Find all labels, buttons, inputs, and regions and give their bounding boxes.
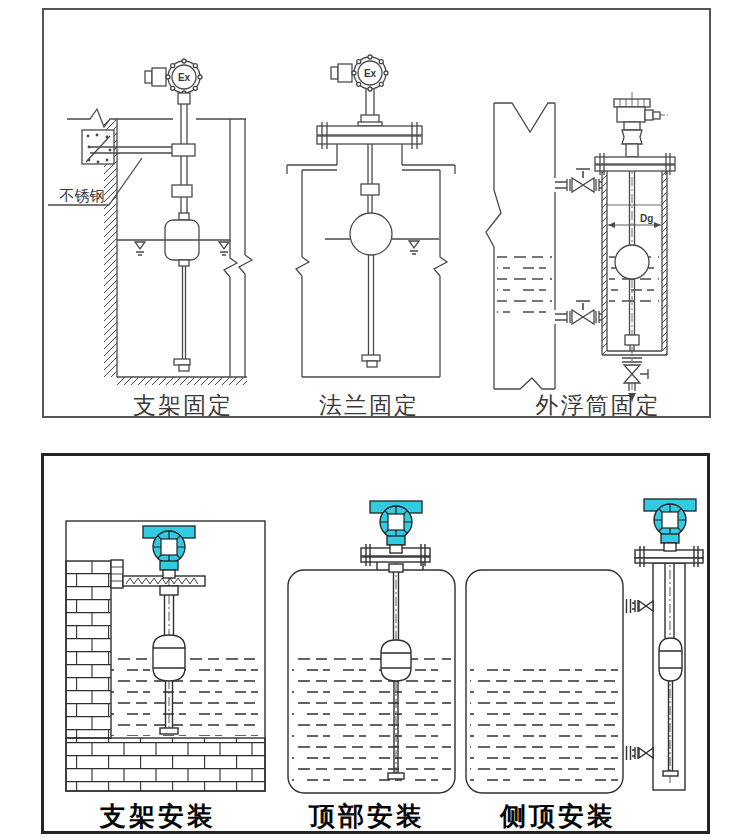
tank-wall-left bbox=[486, 103, 501, 389]
rod-coupling bbox=[361, 184, 379, 195]
flange-lower-plate bbox=[317, 136, 422, 144]
tank-wall-outer bbox=[239, 119, 252, 377]
bottom-panel-installation-methods: 支架安装 顶部安装 bbox=[41, 453, 710, 834]
tank-wall-inner bbox=[224, 119, 237, 377]
cable-gland-body bbox=[152, 68, 166, 86]
head-neck bbox=[178, 93, 190, 104]
rod-lower bbox=[369, 255, 374, 355]
sphere-float bbox=[350, 213, 392, 255]
stem bbox=[626, 144, 638, 157]
rod-mid bbox=[181, 197, 187, 213]
bottom-panel-drawing: 支架安装 顶部安装 bbox=[44, 456, 707, 831]
diagram-side-top-installation bbox=[466, 546, 703, 793]
tank-water bbox=[470, 663, 619, 789]
ex-label-2: Ex bbox=[364, 68, 377, 79]
caption-flange-fixing: 法兰固定 bbox=[319, 392, 419, 416]
pool-water bbox=[111, 652, 262, 736]
tank-top-break bbox=[494, 103, 555, 132]
upper-pipe-connection bbox=[627, 599, 654, 613]
tank-wall-right bbox=[434, 170, 447, 377]
lower-isolation-valve bbox=[555, 301, 602, 324]
stainless-steel-label: 不锈钢 bbox=[59, 187, 105, 204]
flange-lower bbox=[361, 557, 430, 562]
union-nut bbox=[622, 130, 642, 144]
side-connector bbox=[645, 110, 653, 120]
tank-liquid bbox=[497, 256, 552, 314]
top-panel-drawing: 不锈钢 Ex 支架固定 bbox=[44, 10, 709, 416]
diagram-top-installation bbox=[288, 544, 455, 793]
head-stem bbox=[366, 89, 374, 115]
rod-coupling bbox=[172, 185, 192, 197]
caption-external-chamber-fixing: 外浮筒固定 bbox=[535, 392, 661, 416]
rod-coupling bbox=[160, 586, 178, 595]
flange-upper-plate bbox=[317, 126, 422, 135]
diagram-bracket-fixing bbox=[48, 59, 252, 385]
tank-water bbox=[292, 656, 451, 789]
chamber-flange-upper bbox=[595, 157, 675, 164]
brick-floor bbox=[66, 738, 265, 791]
caption-side-top-installation: 侧顶安装 bbox=[499, 801, 616, 831]
diagram-external-chamber-fixing bbox=[486, 92, 675, 402]
ex-transmitter-head bbox=[145, 59, 202, 95]
head-body bbox=[617, 107, 645, 122]
rod-lower bbox=[183, 266, 186, 359]
float-bottom-stub bbox=[179, 260, 189, 266]
ex-transmitter-head-2 bbox=[331, 55, 388, 91]
chamber-transmitter bbox=[614, 99, 670, 157]
ground-line bbox=[67, 109, 246, 127]
rod-upper bbox=[368, 144, 372, 184]
cable-gland-body bbox=[338, 64, 352, 82]
top-panel-fixing-methods: 不锈钢 Ex 支架固定 bbox=[42, 8, 711, 418]
caption-bracket-installation: 支架安装 bbox=[99, 801, 216, 831]
nozzle-neck bbox=[337, 144, 402, 165]
caption-top-installation: 顶部安装 bbox=[308, 801, 425, 831]
rod-tip bbox=[367, 361, 377, 367]
lower-pipe-connection bbox=[627, 746, 654, 760]
chamber-wall-hatch-left bbox=[602, 171, 607, 355]
rod-clamp bbox=[172, 144, 195, 156]
water-level-symbol bbox=[409, 241, 419, 254]
side-connector-2 bbox=[653, 112, 660, 119]
floor-hatch bbox=[117, 377, 247, 385]
tank-wall-left bbox=[296, 170, 309, 377]
float-body bbox=[381, 640, 411, 681]
diagram-flange-fixing bbox=[287, 55, 455, 377]
float-body bbox=[153, 635, 185, 681]
float-body bbox=[659, 638, 682, 681]
brick-wall bbox=[66, 561, 111, 738]
tank-bottom-break bbox=[494, 378, 555, 389]
cable-gland bbox=[331, 67, 338, 79]
chamber-wall-hatch-right bbox=[662, 171, 667, 355]
cable-gland bbox=[145, 71, 152, 83]
dg-label: Dg bbox=[640, 213, 653, 224]
flange-lower bbox=[635, 558, 703, 563]
rod-mid bbox=[368, 195, 372, 214]
rod-coupling bbox=[625, 335, 639, 345]
rod-stop bbox=[663, 771, 678, 776]
rod-stop bbox=[174, 359, 190, 365]
rod-stop bbox=[388, 773, 404, 779]
float-top-stub bbox=[179, 213, 189, 220]
sphere-float bbox=[615, 245, 649, 279]
head-neck bbox=[624, 122, 640, 130]
chamber-flange-lower bbox=[595, 165, 675, 171]
caption-bracket-fixing: 支架固定 bbox=[133, 392, 233, 416]
upper-isolation-valve bbox=[555, 169, 602, 192]
tank-top bbox=[287, 165, 455, 174]
rod-tip bbox=[179, 365, 189, 371]
rod-coupling bbox=[389, 564, 403, 572]
rod-stop bbox=[362, 355, 380, 361]
ex-label-1: Ex bbox=[178, 72, 191, 83]
rod-stop bbox=[160, 728, 178, 734]
